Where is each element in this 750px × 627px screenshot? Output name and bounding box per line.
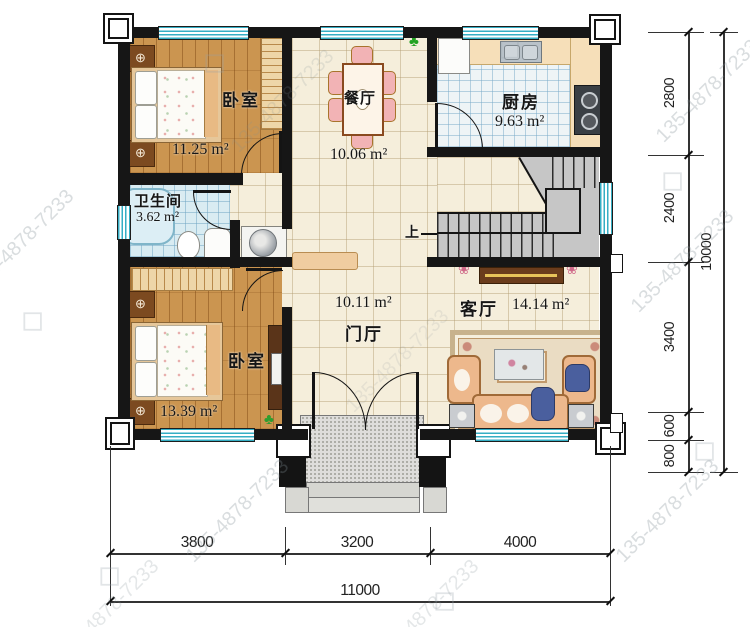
dim-right-total: 10000 xyxy=(699,222,715,282)
room-label-kitchen: 厨房 xyxy=(502,88,540,113)
tv-cabinet xyxy=(479,267,564,284)
dim-line-right-total xyxy=(723,32,725,472)
side-table xyxy=(449,404,475,428)
floor-plan-page: ⊕ ⊕ ⊕ ⊕ ♣ ♣ xyxy=(0,0,750,627)
foyer-console xyxy=(292,252,358,270)
dim-ext-line xyxy=(610,446,611,606)
bed-blanket xyxy=(157,325,208,397)
door-leaf xyxy=(416,372,419,429)
coffee-table xyxy=(494,349,544,380)
pillow-icon xyxy=(135,71,157,105)
window-stairwell xyxy=(599,182,613,235)
wall-bedroom-bottom-top xyxy=(118,257,292,267)
burner-icon xyxy=(581,92,598,109)
dim-bottom-total: 11000 xyxy=(330,582,390,600)
window-kitchen xyxy=(462,26,539,40)
door-leaf xyxy=(312,372,315,429)
pillow-icon xyxy=(135,105,157,139)
door-leaf xyxy=(246,268,282,271)
stair-well-rail-box xyxy=(545,188,581,234)
diamond-watermark-icon: ◇ xyxy=(8,297,55,344)
corner-pillar-top-left xyxy=(103,13,134,44)
room-label-bedroom-top: 卧室 xyxy=(222,86,260,111)
dim-ext-line xyxy=(430,527,431,565)
porch-column-left xyxy=(279,458,306,487)
side-table xyxy=(568,404,594,428)
person-sitting xyxy=(531,387,555,421)
dim-line-bottom-total xyxy=(110,601,611,603)
room-label-dining: 餐厅 xyxy=(344,87,376,108)
diamond-watermark-icon: ◇ xyxy=(420,577,467,624)
pilaster-right-lower xyxy=(610,413,623,433)
washer-door xyxy=(249,229,277,257)
cushion xyxy=(480,404,502,423)
watermark-text: 135-4878-7233 xyxy=(0,185,79,297)
window-dining xyxy=(320,26,404,40)
pillow-icon xyxy=(135,326,157,361)
window-bedroom-top xyxy=(158,26,249,40)
dim-tick xyxy=(648,32,704,33)
dim-bottom-3200: 3200 xyxy=(327,534,387,552)
wall-bedroom-bottom-right xyxy=(282,307,292,429)
toilet-icon xyxy=(177,231,200,259)
dim-right-800: 800 xyxy=(662,426,678,486)
tv-bar xyxy=(485,274,557,277)
dim-line-right-segments xyxy=(688,32,690,472)
bed-bottom xyxy=(131,322,223,401)
cushion xyxy=(454,369,470,391)
dim-right-2400: 2400 xyxy=(662,178,678,238)
bed-throw xyxy=(204,70,218,137)
watermark-text: 135-4878-7233 xyxy=(52,555,164,627)
plant-icon: ♣ xyxy=(264,412,274,429)
porch-column-right xyxy=(419,458,446,487)
porch-column-foot-left xyxy=(285,487,309,513)
stair-upper-flight xyxy=(552,157,599,188)
room-area-bathroom: 3.62 m² xyxy=(136,210,179,226)
pilaster-right-upper xyxy=(610,254,623,273)
room-area-bedroom-bottom: 13.39 m² xyxy=(160,403,217,421)
nightstand-icon: ⊕ xyxy=(126,291,155,318)
cushion xyxy=(507,404,529,423)
bed-blanket xyxy=(157,70,206,139)
sink-basin xyxy=(522,45,538,60)
room-label-living: 客厅 xyxy=(460,295,498,320)
porch-column-foot-right xyxy=(423,487,447,513)
wall-bedroom-top-right xyxy=(282,27,292,229)
kitchen-sink-icon xyxy=(500,41,542,63)
wall-stairs-bottom xyxy=(427,257,611,267)
room-area-living: 14.14 m² xyxy=(512,296,569,314)
window-living xyxy=(475,428,569,442)
room-label-bedroom-bottom: 卧室 xyxy=(228,347,266,372)
washing-machine-icon xyxy=(241,226,287,259)
dim-tick xyxy=(648,262,704,263)
wall-kitchen-left xyxy=(427,27,437,102)
stair-lower-flight xyxy=(437,212,557,259)
person-sitting xyxy=(565,364,590,392)
dim-tick xyxy=(648,155,704,156)
wardrobe-top xyxy=(261,38,284,130)
stairs-up-line xyxy=(421,233,437,235)
sink-basin xyxy=(504,45,520,60)
tv-icon xyxy=(271,353,282,385)
fridge-icon xyxy=(438,38,470,74)
bed-throw xyxy=(206,325,220,395)
stair-rail-line xyxy=(437,232,557,234)
nightstand-icon: ⊕ xyxy=(126,140,155,167)
closet-strip xyxy=(131,268,233,291)
porch-step-2 xyxy=(306,497,420,513)
door-leaf xyxy=(279,131,282,173)
diamond-watermark-icon: ◇ xyxy=(680,427,727,474)
door-leaf xyxy=(193,190,231,193)
wall-bedroom-top-bottom xyxy=(118,173,243,185)
dim-right-3400: 3400 xyxy=(662,307,678,367)
dim-ext-line xyxy=(110,446,111,606)
room-area-dining: 10.06 m² xyxy=(330,146,387,164)
stove-icon xyxy=(574,85,601,135)
dim-bottom-4000: 4000 xyxy=(490,534,550,552)
diamond-watermark-icon: ◇ xyxy=(85,552,132,599)
window-bathroom xyxy=(117,205,131,240)
room-area-kitchen: 9.63 m² xyxy=(495,113,544,131)
dim-right-2800: 2800 xyxy=(662,63,678,123)
door-leaf xyxy=(435,103,438,148)
room-area-foyer: 10.11 m² xyxy=(335,294,392,312)
room-label-bathroom: 卫生间 xyxy=(134,190,182,211)
dim-bottom-3800: 3800 xyxy=(167,534,227,552)
room-label-foyer: 门厅 xyxy=(345,320,383,345)
dim-ext-line xyxy=(285,527,286,565)
room-area-bedroom-top: 11.25 m² xyxy=(172,141,229,159)
bath-vanity xyxy=(204,228,231,259)
stairs-up-label: 上 xyxy=(405,222,419,242)
burner-icon xyxy=(581,113,598,130)
window-bedroom-bottom xyxy=(160,428,255,442)
pillow-icon xyxy=(135,362,157,397)
dim-line-bottom-segments xyxy=(110,553,611,555)
corner-pillar-top-right xyxy=(589,14,621,45)
bed-top xyxy=(131,67,222,143)
